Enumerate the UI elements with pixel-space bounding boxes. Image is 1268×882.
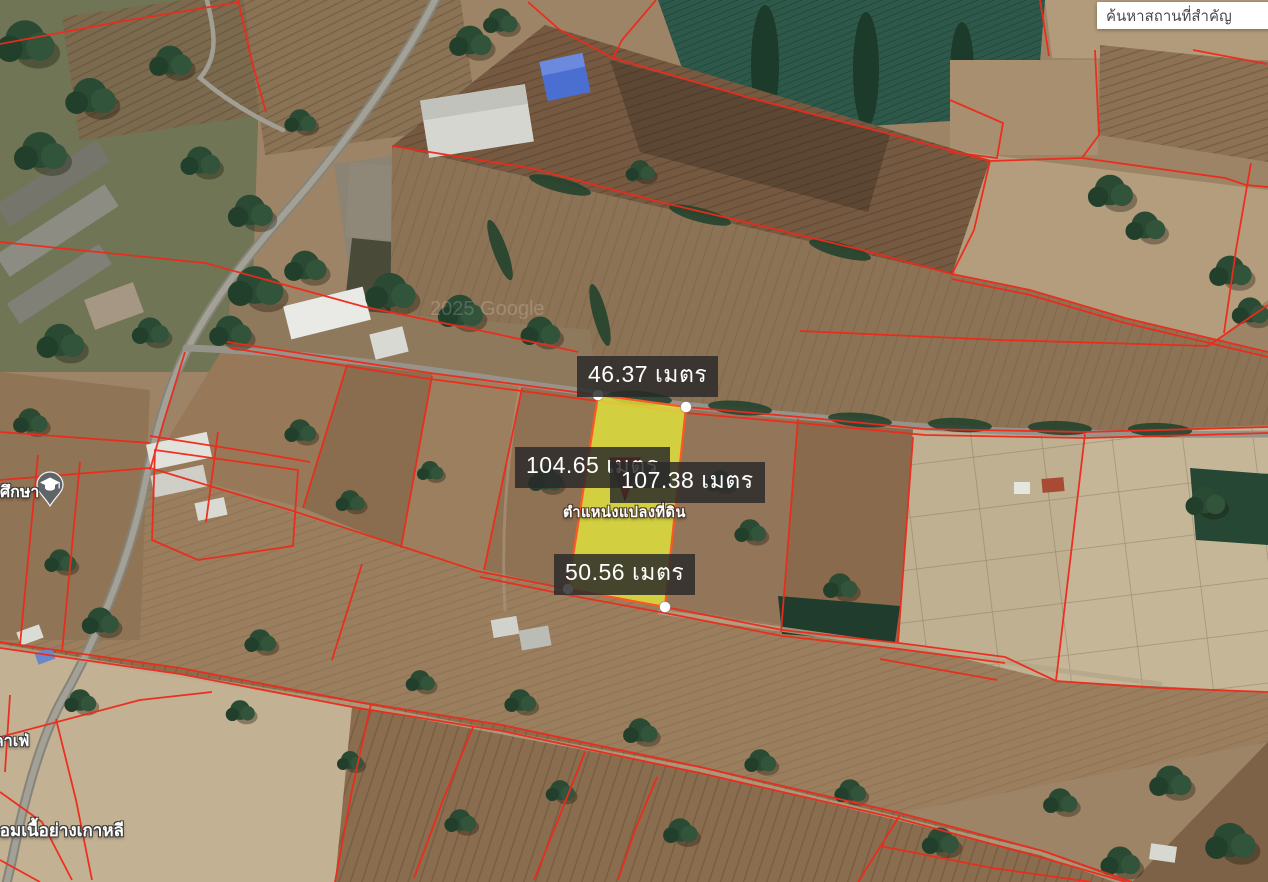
imagery-watermark: 2025 Google bbox=[430, 298, 545, 320]
poi-label-restaurant[interactable]: เอมเนื้อย่างเกาหลี bbox=[0, 817, 124, 844]
measurement-label-top: 46.37 เมตร bbox=[577, 356, 718, 397]
satellite-map: 2025 Google bbox=[0, 0, 1268, 882]
map-canvas[interactable]: 2025 Google bbox=[0, 0, 1268, 882]
poi-label-school[interactable]: ศึกษา bbox=[0, 480, 39, 505]
measurement-label-bottom: 50.56 เมตร bbox=[554, 554, 695, 595]
poi-label-cafe[interactable]: คาเฟ่ bbox=[0, 729, 29, 754]
measurement-label-east: 107.38 เมตร bbox=[610, 462, 765, 503]
parcel-location-label: ตำแหน่งแปลงที่ดิน bbox=[563, 501, 686, 524]
search-input[interactable] bbox=[1097, 2, 1268, 29]
